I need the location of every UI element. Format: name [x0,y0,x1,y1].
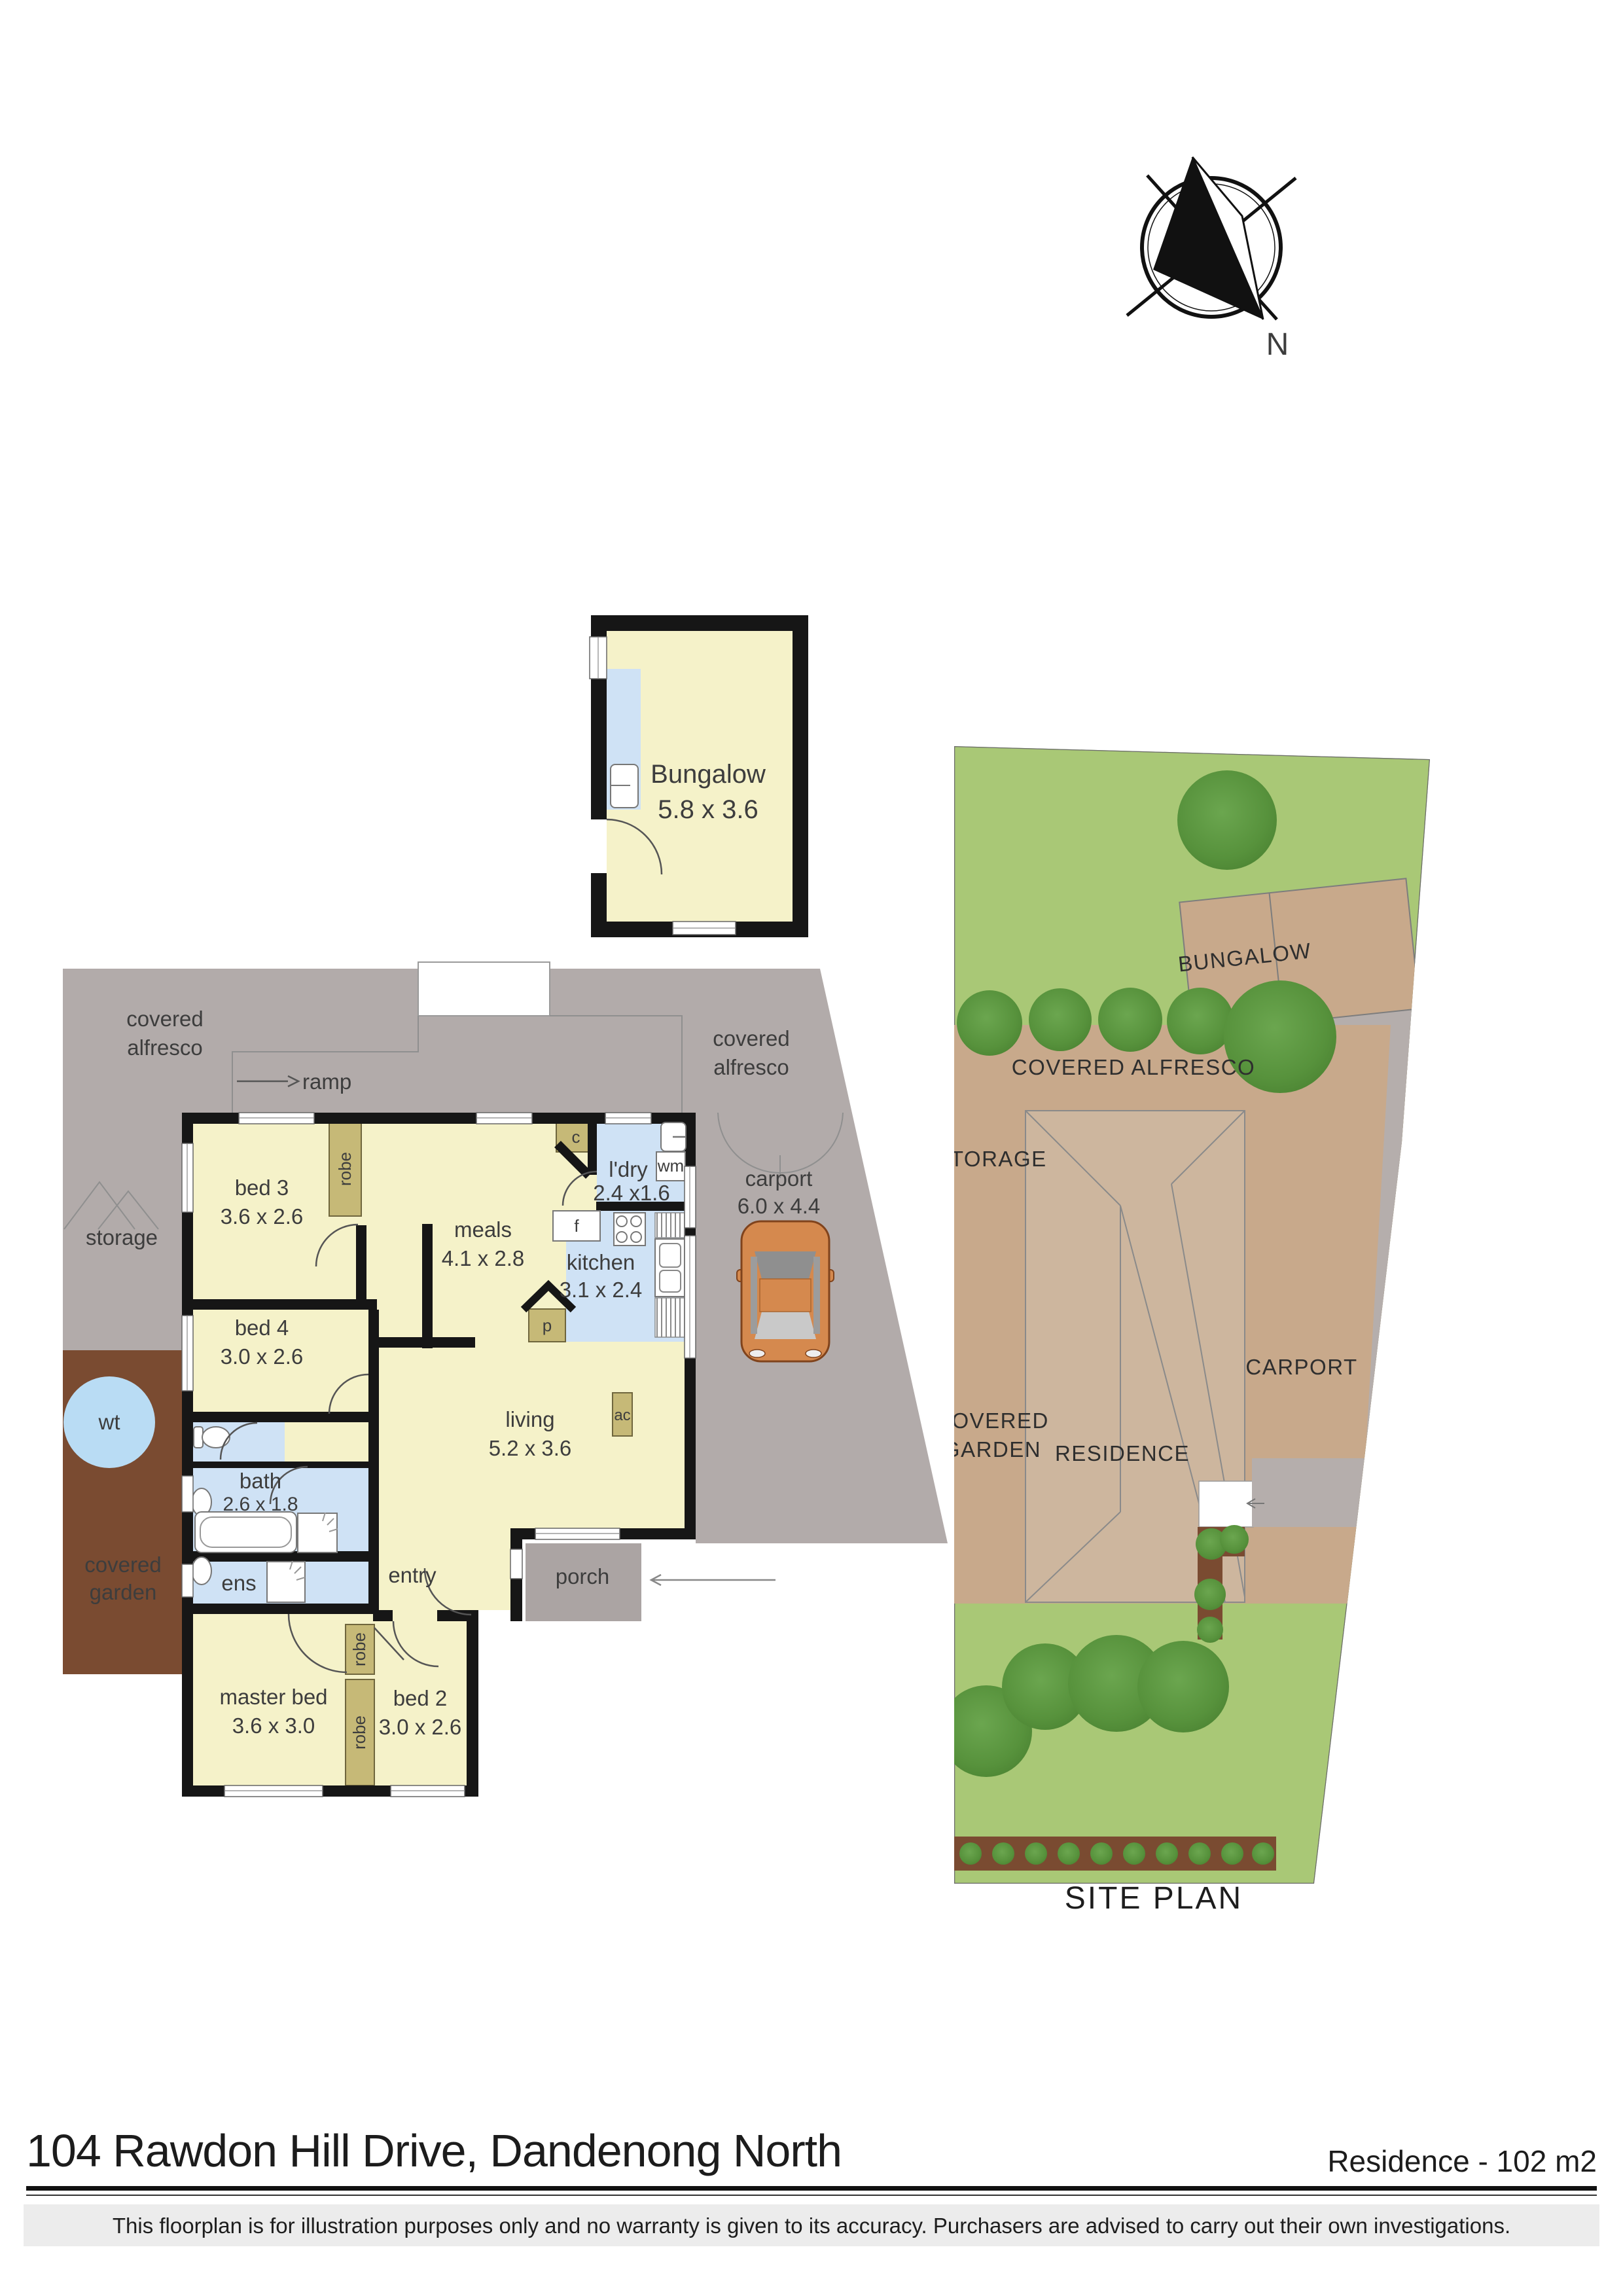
tree-icon [1177,770,1277,870]
area-label-covered-garden: garden [90,1580,157,1604]
room-label-ensuite: ens [221,1571,256,1595]
shower-icon [298,1513,337,1552]
water-tank-label: wt [98,1410,120,1434]
air-conditioner-label: ac [614,1407,630,1424]
tree-icon [1029,988,1092,1051]
tree-icon [1098,988,1162,1052]
room-label-bed3: bed 3 [235,1175,289,1200]
area-label-porch: porch [556,1564,610,1588]
site-label-covered-garden: GARDEN [943,1437,1041,1462]
toilet-icon [194,1427,203,1448]
site-label-covered-garden: COVERED [935,1408,1049,1433]
main-floorplan: ramp [63,962,948,1797]
room-label-bath: bath [240,1469,281,1493]
room-label-carport: carport [745,1166,813,1191]
room-dims-bed4: 3.0 x 2.6 [221,1344,304,1369]
tree-icon [1167,988,1234,1054]
address-title: 104 Rawdon Hill Drive, Dandenong North [26,2125,842,2176]
pantry-label: p [543,1316,552,1335]
room-label-living: living [505,1407,554,1431]
area-label-covered-alfresco: covered [126,1007,203,1031]
room-dims-bed2: 3.0 x 2.6 [379,1715,462,1739]
area-label-covered-garden: covered [84,1552,161,1577]
room-dims-master: 3.6 x 3.0 [232,1713,315,1738]
disclaimer-text: This floorplan is for illustration purpo… [113,2214,1510,2238]
ramp-landing [418,962,550,1016]
bathtub-icon [195,1512,296,1552]
basin-icon [192,1557,211,1585]
room-dims-living: 5.2 x 3.6 [489,1436,572,1460]
room-dims-laundry: 2.4 x1.6 [593,1181,669,1205]
site-label-residence: RESIDENCE [1055,1441,1190,1465]
tree-icon [1137,1641,1229,1732]
floorplan-drawing: N Bungalow 5.8 x 3.6 ramp [0,0,1623,2296]
floorplan-page: N Bungalow 5.8 x 3.6 ramp [0,0,1623,2296]
area-label-storage: storage [86,1225,158,1249]
bush-icon [1197,1617,1223,1643]
robe-label: robe [349,1715,369,1749]
room-label-laundry: l'dry [609,1157,648,1181]
toilet-bowl-icon [202,1427,230,1448]
footer: 104 Rawdon Hill Drive, Dandenong North R… [24,2125,1599,2246]
site-plan: BUNGALOW COVERED ALFRESCO STORAGE COVERE… [935,746,1432,1916]
divider-line-thin [26,2195,1597,2196]
robe-label: robe [335,1152,355,1186]
site-label-storage: STORAGE [935,1147,1046,1171]
bush-icon [1220,1525,1249,1554]
area-label-covered-alfresco-right: covered [713,1026,789,1050]
site-label-covered-alfresco: COVERED ALFRESCO [1012,1055,1255,1079]
area-label-covered-alfresco-right: alfresco [713,1055,789,1079]
area-label-covered-alfresco: alfresco [127,1035,203,1060]
residence-area-label: Residence - 102 m2 [1327,2144,1597,2178]
washing-machine-label: wm [657,1156,684,1175]
room-label-bed2: bed 2 [393,1686,448,1710]
bungalow-door-opening [590,819,607,873]
drying-rack-icon [655,1213,685,1238]
compass-north-label: N [1266,327,1289,362]
room-dims-kitchen: 3.1 x 2.4 [560,1278,643,1302]
compass: N [1127,157,1296,362]
area-label-entry: entry [388,1563,437,1587]
cupboard-label: c [572,1127,580,1147]
fridge-label: f [574,1216,579,1236]
car-icon [737,1221,834,1361]
room-dims-carport: 6.0 x 4.4 [738,1194,821,1218]
room-label-master: master bed [219,1685,327,1709]
ramp-label: ramp [302,1069,351,1094]
room-label-bed4: bed 4 [235,1316,289,1340]
divider-line [26,2186,1597,2191]
room-dims-meals: 4.1 x 2.8 [442,1246,525,1270]
bungalow-plan: Bungalow 5.8 x 3.6 [590,615,808,937]
site-porch [1199,1481,1253,1527]
room-dims-bath: 2.6 x 1.8 [223,1494,298,1515]
site-plan-title: SITE PLAN [1065,1881,1243,1916]
bush-icon [1194,1579,1226,1610]
robe-label: robe [349,1632,369,1666]
site-driveway [1252,1458,1383,1527]
bungalow-dims-label: 5.8 x 3.6 [658,795,758,824]
site-label-carport: CARPORT [1245,1355,1357,1379]
room-label-kitchen: kitchen [567,1250,635,1274]
room-dims-bed3: 3.6 x 2.6 [221,1204,304,1229]
bungalow-name-label: Bungalow [651,760,766,789]
room-label-meals: meals [454,1217,512,1242]
drying-rack-icon [655,1298,685,1337]
tree-icon [957,990,1022,1056]
